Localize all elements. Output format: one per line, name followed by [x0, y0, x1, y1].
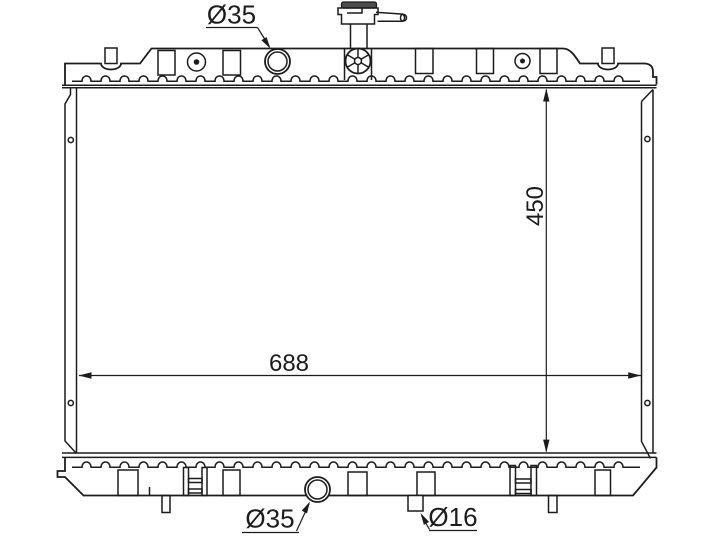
bottom-tank [58, 453, 657, 513]
dimension-core-height: 450 [522, 89, 550, 453]
callout-label-bottom-outlet: Ø35 [245, 504, 294, 534]
arrowhead-leader [418, 512, 429, 525]
right-bracket-outline [642, 90, 654, 459]
clip-rung [189, 479, 203, 483]
tank-cutout [416, 49, 434, 74]
tank-cutout [595, 470, 611, 496]
top-right-peg [602, 48, 614, 64]
radiator-cap-top [342, 2, 377, 8]
radiator-drawing: 450 688 Ø35 Ø35 Ø16 [0, 0, 720, 540]
arrowhead-left [79, 372, 92, 378]
mount-hole-center [520, 59, 525, 64]
clip-rail [510, 466, 516, 496]
bottom-peg [549, 496, 558, 513]
callout-label-drain: Ø16 [428, 502, 477, 532]
radiator-cap-skirt [338, 8, 378, 24]
radiator-technical-drawing-page: 450 688 Ø35 Ø35 Ø16 [0, 0, 720, 540]
arrowhead-right [628, 372, 641, 378]
bracket-hole [645, 400, 650, 405]
overflow-tube [376, 12, 407, 21]
clip-rail [531, 466, 537, 496]
callout-drain-port: Ø16 [418, 502, 478, 532]
callout-top-inlet: Ø35 [206, 0, 273, 50]
tank-cutout [540, 49, 557, 74]
arrowhead-down [543, 440, 549, 453]
clip-rung [516, 479, 532, 483]
clip-bracket [184, 468, 208, 496]
tank-cutout [118, 470, 138, 496]
dimension-core-width: 688 [79, 350, 642, 379]
bracket-hole [68, 400, 73, 405]
clip-bracket [510, 466, 537, 496]
mount-hole-center [194, 59, 200, 65]
clip-rung [189, 489, 203, 493]
left-side-bracket [65, 89, 77, 454]
arrowhead-up [543, 89, 549, 102]
drain-port [408, 496, 423, 512]
callout-bottom-outlet: Ø35 [242, 500, 313, 533]
right-side-bracket [642, 90, 654, 459]
bottom-outlet-port-inner [308, 480, 327, 499]
tank-cutout [477, 49, 494, 74]
tank-cutout [348, 472, 367, 496]
top-left-peg [105, 48, 117, 64]
tank-cutout [417, 472, 435, 496]
top-tank-crimp-wave [72, 76, 640, 81]
dimension-label-core-width: 688 [269, 350, 309, 377]
bracket-hole [68, 137, 73, 142]
arrowhead-leader [302, 500, 313, 513]
top-tank [62, 2, 657, 88]
dimension-label-core-height: 450 [522, 186, 549, 226]
clip-rung [516, 490, 532, 494]
filler-neck-assembly [338, 2, 407, 80]
overflow-tube-end [401, 15, 405, 21]
bottom-tank-crimp-wave [72, 462, 640, 467]
tank-cutout [223, 470, 240, 496]
radiator-cap-detail [347, 9, 362, 14]
tank-cutout [158, 51, 175, 76]
bracket-hole [645, 136, 650, 141]
bottom-peg [162, 496, 170, 513]
callout-label-top-inlet: Ø35 [207, 0, 256, 30]
tank-cutout [223, 51, 241, 76]
